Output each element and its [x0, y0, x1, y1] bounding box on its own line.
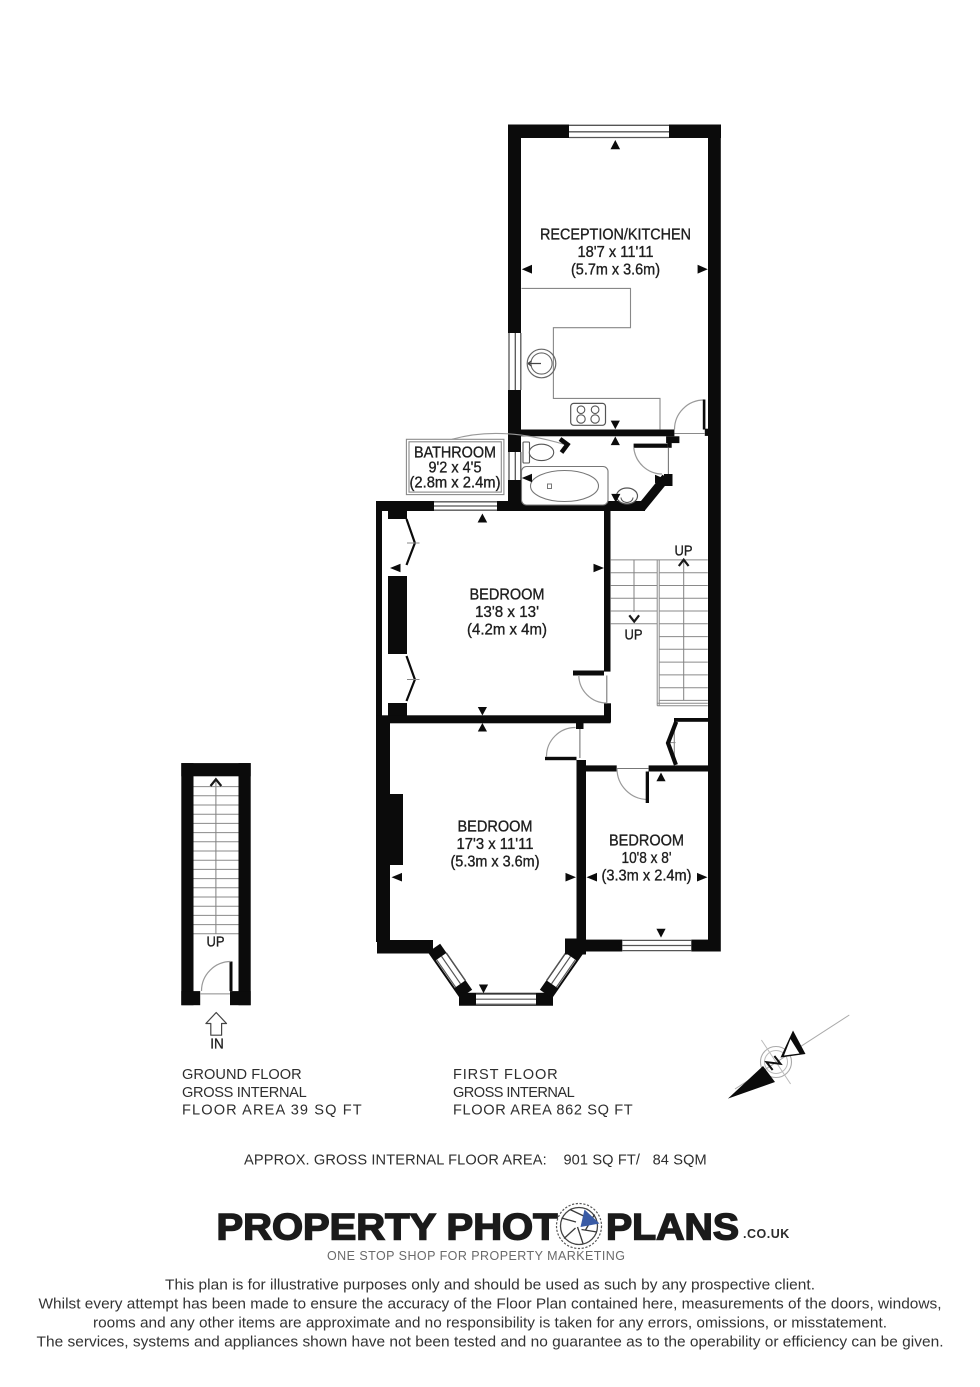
- svg-text:ONE STOP SHOP FOR PROPERTY MAR: ONE STOP SHOP FOR PROPERTY MARKETING: [327, 1249, 625, 1263]
- svg-text:UP: UP: [207, 935, 225, 951]
- svg-text:10'8 x 8': 10'8 x 8': [622, 850, 672, 867]
- svg-text:GROSS INTERNAL: GROSS INTERNAL: [182, 1085, 307, 1101]
- svg-text:FIRST FLOOR: FIRST FLOOR: [453, 1067, 558, 1083]
- svg-text:(5.3m x 3.6m): (5.3m x 3.6m): [451, 854, 540, 871]
- svg-text:FLOOR AREA 39 SQ FT: FLOOR AREA 39 SQ FT: [182, 1103, 362, 1119]
- svg-text:UP: UP: [675, 544, 693, 560]
- svg-text:This plan is for illustrative: This plan is for illustrative purposes o…: [165, 1278, 815, 1294]
- svg-text:rooms and any other items are: rooms and any other items are approximat…: [93, 1316, 887, 1332]
- svg-text:17'3 x 11'11: 17'3 x 11'11: [457, 836, 534, 853]
- svg-text:APPROX. GROSS INTERNAL FLOOR A: APPROX. GROSS INTERNAL FLOOR AREA: 901 S…: [244, 1153, 707, 1169]
- svg-text:BEDROOM: BEDROOM: [609, 833, 684, 850]
- svg-text:The services, systems and appl: The services, systems and appliances sho…: [37, 1335, 944, 1351]
- svg-text:BEDROOM: BEDROOM: [458, 819, 533, 836]
- svg-text:GROSS INTERNAL: GROSS INTERNAL: [453, 1085, 575, 1101]
- svg-text:GROUND FLOOR: GROUND FLOOR: [182, 1067, 302, 1083]
- svg-text:UP: UP: [625, 628, 643, 644]
- svg-text:PLANS: PLANS: [606, 1207, 739, 1248]
- svg-text:BEDROOM: BEDROOM: [470, 587, 545, 604]
- svg-text:FLOOR AREA 862 SQ FT: FLOOR AREA 862 SQ FT: [453, 1103, 633, 1119]
- svg-text:IN: IN: [210, 1037, 224, 1053]
- svg-text:.CO.UK: .CO.UK: [743, 1227, 790, 1241]
- svg-text:(2.8m x 2.4m): (2.8m x 2.4m): [410, 475, 501, 492]
- svg-text:(3.3m x 2.4m): (3.3m x 2.4m): [602, 868, 692, 885]
- svg-text:13'8 x 13': 13'8 x 13': [475, 604, 539, 621]
- svg-text:18'7 x 11'11: 18'7 x 11'11: [578, 244, 654, 261]
- svg-text:(5.7m x 3.6m): (5.7m x 3.6m): [571, 262, 660, 279]
- svg-text:RECEPTION/KITCHEN: RECEPTION/KITCHEN: [540, 227, 691, 244]
- svg-text:(4.2m x 4m): (4.2m x 4m): [467, 622, 547, 639]
- svg-text:Whilst every attempt has been: Whilst every attempt has been made to en…: [39, 1297, 942, 1313]
- svg-text:PROPERTY PHOT: PROPERTY PHOT: [217, 1207, 558, 1248]
